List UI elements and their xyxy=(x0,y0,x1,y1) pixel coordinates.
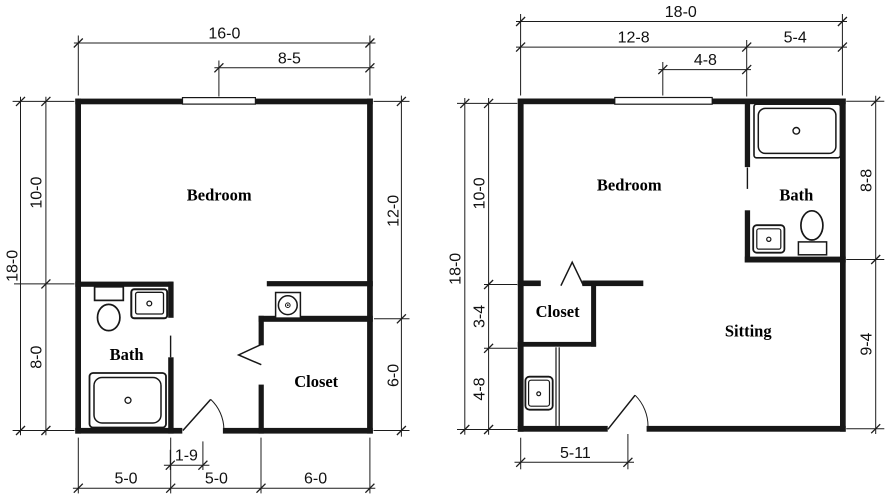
svg-text:8-8: 8-8 xyxy=(859,169,876,192)
svg-text:10-0: 10-0 xyxy=(29,176,46,208)
svg-text:8-0: 8-0 xyxy=(29,346,46,369)
svg-text:5-0: 5-0 xyxy=(205,471,228,488)
svg-text:Sitting: Sitting xyxy=(725,321,773,340)
svg-text:Bath: Bath xyxy=(779,186,813,205)
svg-text:Bedroom: Bedroom xyxy=(597,175,662,194)
svg-text:10-0: 10-0 xyxy=(471,177,488,209)
svg-text:9-4: 9-4 xyxy=(859,332,876,355)
svg-text:18-0: 18-0 xyxy=(665,4,697,21)
svg-text:5-0: 5-0 xyxy=(114,471,137,488)
svg-text:16-0: 16-0 xyxy=(208,26,240,43)
svg-text:12-0: 12-0 xyxy=(385,195,402,227)
svg-text:6-0: 6-0 xyxy=(304,471,327,488)
svg-text:4-8: 4-8 xyxy=(471,377,488,400)
svg-text:6-0: 6-0 xyxy=(385,364,402,387)
svg-text:Closet: Closet xyxy=(536,302,580,321)
svg-text:Bath: Bath xyxy=(110,345,144,364)
svg-text:8-5: 8-5 xyxy=(278,50,301,67)
svg-text:12-8: 12-8 xyxy=(618,30,650,47)
svg-text:18-0: 18-0 xyxy=(448,253,465,285)
svg-text:4-8: 4-8 xyxy=(694,52,717,69)
svg-text:1-9: 1-9 xyxy=(175,448,198,465)
svg-text:18-0: 18-0 xyxy=(4,250,21,282)
svg-text:Closet: Closet xyxy=(294,372,338,391)
svg-text:3-4: 3-4 xyxy=(471,305,488,328)
svg-text:Bedroom: Bedroom xyxy=(187,186,252,205)
svg-text:5-11: 5-11 xyxy=(560,445,591,462)
svg-text:5-4: 5-4 xyxy=(784,30,807,47)
